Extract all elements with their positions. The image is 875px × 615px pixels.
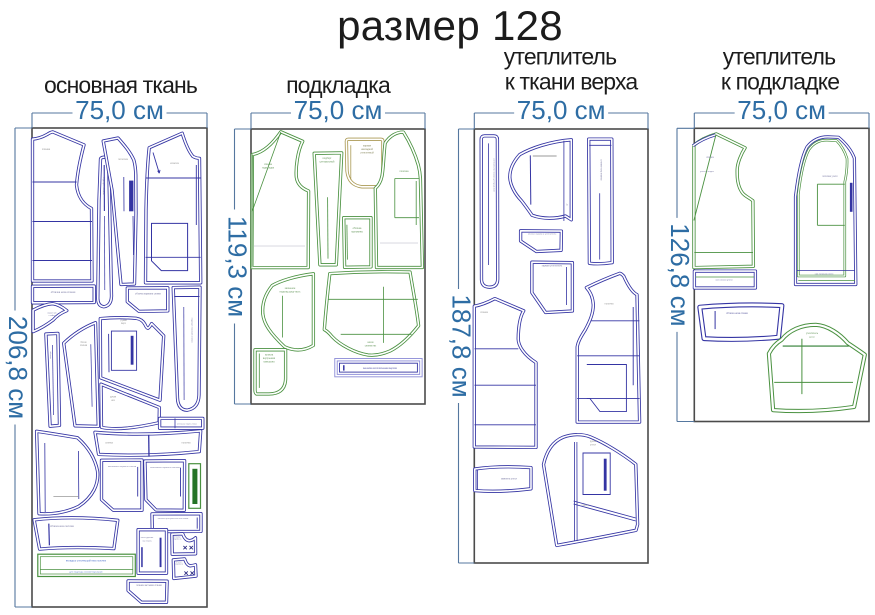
svg-text:обтачка борта план: обтачка борта план xyxy=(177,424,198,426)
svg-text:бочок: бочок xyxy=(80,342,87,344)
svg-text:спинка: спинка xyxy=(264,163,272,166)
svg-text:подборт: подборт xyxy=(322,157,332,160)
svg-text:126,8 см: 126,8 см xyxy=(665,223,695,326)
svg-text:воротник: воротник xyxy=(47,313,56,315)
svg-text:мешковина кармана полочки: мешковина кармана полочки xyxy=(150,467,180,469)
svg-text:полочка утепл: полочка утепл xyxy=(822,176,838,178)
svg-text:низ: низ xyxy=(111,400,115,402)
svg-text:спинка: спинка xyxy=(480,311,488,314)
svg-text:спинка: спинка xyxy=(105,442,113,445)
svg-text:спинки низ: спинки низ xyxy=(365,346,376,348)
svg-text:планка застежки спинки: планка застежки спинки xyxy=(136,585,162,587)
svg-text:кокетка: кокетка xyxy=(170,162,179,165)
svg-text:кармана: кармана xyxy=(174,539,183,541)
svg-text:к подкладке: к подкладке xyxy=(721,69,839,95)
svg-text:кулиска: кулиска xyxy=(265,355,274,357)
svg-text:утеплитель: утеплитель xyxy=(806,333,819,335)
svg-text:верх: верх xyxy=(121,323,127,325)
svg-text:обтачка низа спинки: обтачка низа спинки xyxy=(726,313,748,315)
svg-text:спинка: спинка xyxy=(706,157,714,159)
svg-text:206,8 см: 206,8 см xyxy=(3,316,33,419)
svg-text:паты рукава: паты рукава xyxy=(141,537,154,539)
svg-text:подклад сред часть: подклад сред часть xyxy=(280,292,302,294)
svg-text:187,8 см: 187,8 см xyxy=(447,294,477,397)
svg-text:кармана: кармана xyxy=(175,564,184,566)
svg-text:локоть: локоть xyxy=(581,505,589,507)
svg-text:спинка: спинка xyxy=(42,148,51,151)
svg-text:полочка: полочка xyxy=(182,442,192,445)
svg-text:низок: низок xyxy=(367,341,374,344)
svg-text:мешковина кармана спинки: мешковина кармана спинки xyxy=(108,466,137,468)
svg-text:внутренняя: внутренняя xyxy=(263,358,276,360)
svg-text:застежка: застежка xyxy=(142,541,152,543)
svg-text:манжета утепл: манжета утепл xyxy=(501,479,518,481)
svg-text:карман утеплитель: карман утеплитель xyxy=(542,266,563,268)
svg-text:накладной: накладной xyxy=(361,148,373,151)
svg-text:обтачка кармана спинки: обтачка кармана спинки xyxy=(135,293,162,295)
svg-text:рукав: рукав xyxy=(809,336,816,338)
svg-text:рукав: рукав xyxy=(590,440,597,443)
svg-text:капюшона: капюшона xyxy=(264,362,276,364)
svg-text:низ спинки утепл: низ спинки утепл xyxy=(715,280,733,282)
svg-text:обтачка: обтачка xyxy=(353,227,362,230)
svg-text:клапан: клапан xyxy=(176,562,182,564)
svg-text:утепленный: утепленный xyxy=(360,152,374,155)
svg-text:низ полочки утепл: низ полочки утепл xyxy=(815,274,834,276)
svg-text:обтачка: обтачка xyxy=(49,351,51,359)
svg-text:центральный: центральный xyxy=(320,161,335,164)
svg-text:75,0 см: 75,0 см xyxy=(294,95,383,125)
svg-text:полочка: полочка xyxy=(400,170,410,173)
svg-text:карман: карман xyxy=(363,145,372,148)
svg-text:клапан: клапан xyxy=(174,537,180,539)
svg-text:вкладыш утепляющий низа полочк: вкладыш утепляющий низа полочки xyxy=(66,560,107,563)
svg-text:утеплитель планки: утеплитель планки xyxy=(600,160,603,182)
svg-text:горловины: горловины xyxy=(351,231,363,234)
svg-text:рукав: рукав xyxy=(120,319,127,322)
svg-text:размер 128: размер 128 xyxy=(337,2,563,49)
svg-text:119,3 см: 119,3 см xyxy=(223,216,253,317)
svg-text:75,0 см: 75,0 см xyxy=(737,95,826,125)
svg-text:планка центральная застежки: планка центральная застежки xyxy=(158,518,189,520)
svg-text:утепл к подкл: утепл к подкл xyxy=(700,171,715,173)
svg-text:75,0 см: 75,0 см xyxy=(517,95,606,125)
svg-text:клапан кармана утеплитель: клапан кармана утеплитель xyxy=(528,234,557,236)
svg-text:спинки: спинки xyxy=(80,345,88,347)
svg-text:утеплитель: утеплитель xyxy=(723,44,836,70)
svg-text:полочка: полочка xyxy=(118,158,128,161)
svg-text:рукав: рукав xyxy=(110,397,117,399)
svg-text:вешалка изготовленная верхом: вешалка изготовленная верхом xyxy=(363,368,397,370)
svg-text:к ткани верха: к ткани верха xyxy=(505,69,639,95)
svg-text:капюшон: капюшон xyxy=(285,287,296,290)
svg-text:подкладка: подкладка xyxy=(262,166,275,169)
svg-text:75,0 см: 75,0 см xyxy=(75,95,164,125)
svg-text:обтачка низа полочки: обтачка низа полочки xyxy=(50,525,75,528)
svg-text:утепл: утепл xyxy=(590,444,597,446)
svg-text:утеплитель: утеплитель xyxy=(504,44,617,70)
svg-text:полочка: полочка xyxy=(605,303,615,306)
